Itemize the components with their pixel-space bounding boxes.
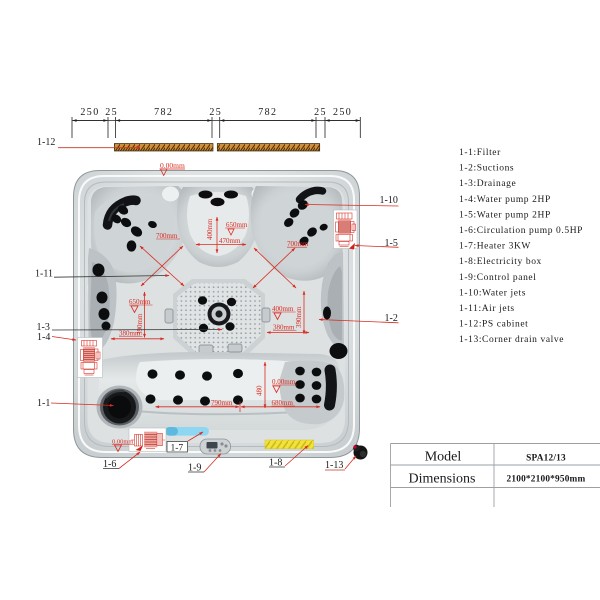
svg-text:1-1:Filter: 1-1:Filter — [459, 148, 501, 158]
svg-text:Dimensions: Dimensions — [409, 472, 476, 487]
svg-text:400mm: 400mm — [206, 218, 214, 240]
svg-text:250: 250 — [333, 107, 352, 118]
svg-text:1-5:Water pump 2HP: 1-5:Water pump 2HP — [459, 210, 551, 220]
svg-text:1-8:Electricity box: 1-8:Electricity box — [459, 257, 542, 267]
svg-text:480: 480 — [256, 385, 264, 396]
svg-text:1-9:Control panel: 1-9:Control panel — [459, 273, 536, 283]
svg-text:1-4: 1-4 — [37, 332, 50, 343]
svg-text:2100*2100*950mm: 2100*2100*950mm — [507, 475, 586, 485]
svg-text:1-7: 1-7 — [171, 444, 184, 454]
svg-text:1-11:Air jets: 1-11:Air jets — [459, 304, 515, 314]
svg-text:390mm: 390mm — [295, 306, 303, 328]
svg-text:1-13:Corner drain valve: 1-13:Corner drain valve — [459, 335, 564, 345]
svg-text:1-2:Suctions: 1-2:Suctions — [459, 164, 514, 174]
svg-text:1-7:Heater 3KW: 1-7:Heater 3KW — [459, 242, 531, 252]
svg-text:470mm: 470mm — [219, 237, 241, 245]
svg-text:1-12:PS cabinet: 1-12:PS cabinet — [459, 320, 528, 330]
svg-text:1-3:Drainage: 1-3:Drainage — [459, 179, 516, 189]
svg-text:782: 782 — [154, 107, 173, 118]
svg-text:1-4:Water pump 2HP: 1-4:Water pump 2HP — [459, 195, 551, 205]
svg-text:1-6:Circulation pump 0.5HP: 1-6:Circulation pump 0.5HP — [459, 226, 583, 236]
svg-text:1-1: 1-1 — [37, 398, 50, 409]
svg-text:1-12: 1-12 — [37, 137, 55, 148]
svg-text:250: 250 — [80, 107, 99, 118]
svg-text:1-10:Water jets: 1-10:Water jets — [459, 288, 526, 298]
svg-text:1-13: 1-13 — [325, 460, 343, 471]
svg-text:25: 25 — [105, 107, 118, 118]
svg-text:SPA12/13: SPA12/13 — [526, 454, 566, 464]
svg-text:700mm: 700mm — [287, 240, 309, 248]
svg-text:782: 782 — [258, 107, 277, 118]
svg-text:25: 25 — [314, 107, 327, 118]
svg-text:Model: Model — [425, 450, 462, 465]
svg-text:25: 25 — [209, 107, 222, 118]
svg-text:1-11: 1-11 — [35, 269, 53, 280]
svg-text:1-10: 1-10 — [380, 195, 398, 206]
